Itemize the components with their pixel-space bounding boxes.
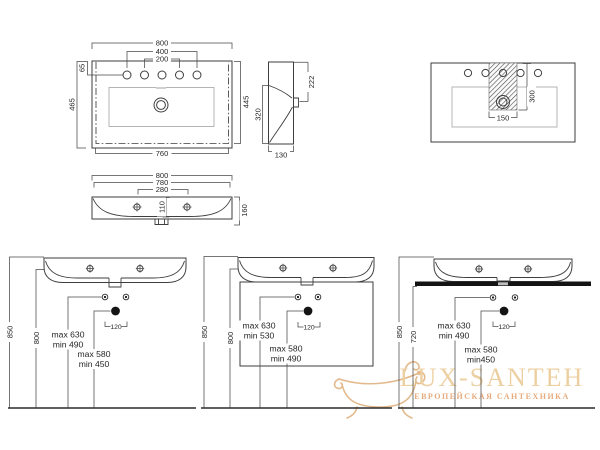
svg-text:445: 445 — [241, 96, 250, 109]
supply-point-icon — [102, 294, 108, 300]
supply-point-icon — [295, 294, 301, 300]
dim-label: 120 — [498, 324, 510, 331]
dim-label: min450 — [463, 355, 500, 365]
sink-outline — [44, 258, 186, 283]
dim-label: 800 — [32, 328, 41, 348]
svg-text:max 580: max 580 — [78, 349, 111, 359]
faucet-hole-icon — [193, 71, 201, 79]
dim-label: 65 — [77, 60, 86, 76]
mount-hole-icon — [133, 203, 142, 212]
dim-label: 280 — [153, 185, 171, 194]
svg-text:min450: min450 — [467, 355, 495, 365]
svg-text:280: 280 — [156, 185, 169, 194]
dim-label: 445 — [241, 92, 250, 113]
bowl-profile — [510, 262, 571, 278]
svg-text:110: 110 — [157, 201, 166, 213]
dim-label: 120 — [110, 324, 122, 331]
drain-ledge — [294, 98, 299, 107]
faucet-hole-icon — [482, 69, 489, 76]
svg-text:max 580: max 580 — [270, 344, 303, 354]
front-view: 800 780 280 110 160 — [92, 171, 249, 225]
svg-text:850: 850 — [5, 326, 14, 339]
svg-text:320: 320 — [253, 108, 262, 121]
svg-text:max 630: max 630 — [438, 321, 471, 331]
svg-text:850: 850 — [200, 326, 209, 339]
dimension-line — [234, 197, 240, 225]
cutout-plan-view: 300 150 — [431, 63, 575, 142]
svg-text:max 580: max 580 — [465, 345, 498, 355]
faucet-hole-icon — [141, 71, 149, 79]
basin-hidden-edge — [96, 62, 229, 144]
svg-text:150: 150 — [497, 113, 510, 122]
faucet-hole-icon — [158, 71, 166, 79]
dim-label: 800 — [226, 328, 235, 348]
svg-text:200: 200 — [156, 55, 169, 64]
dimension-line — [83, 62, 123, 76]
dim-label: 160 — [240, 201, 249, 221]
svg-text:min 490: min 490 — [271, 354, 302, 364]
faucet-hole-icon — [464, 69, 471, 76]
dim-label: 150 — [495, 113, 511, 122]
dim-label: max 630 — [47, 330, 89, 340]
dim-label: max 630 — [433, 321, 475, 331]
dim-label: 222 — [307, 72, 316, 92]
dimension-line — [413, 287, 417, 409]
bowl-outline — [109, 88, 214, 127]
dim-label: 850 — [395, 322, 404, 342]
basin-outline — [92, 61, 232, 148]
mount-hole-icon — [183, 203, 192, 212]
mount-hole-icon — [475, 265, 483, 273]
drain-point-icon — [111, 307, 120, 316]
supply-point-icon — [123, 294, 129, 300]
install-view-cabinet: 850 800 max 630 min 530 max 580 min 490 … — [200, 257, 393, 409]
drain-icon — [157, 101, 166, 110]
supply-point-icon — [315, 294, 321, 300]
svg-text:720: 720 — [409, 331, 418, 344]
bowl-profile — [269, 86, 292, 99]
mount-hole-icon — [86, 264, 94, 272]
svg-text:160: 160 — [240, 204, 249, 217]
dimension-line — [234, 62, 241, 144]
faucet-holes — [123, 71, 201, 79]
dim-label: min 490 — [265, 354, 307, 364]
dim-label: 130 — [272, 150, 290, 159]
dim-label: min 530 — [238, 331, 280, 341]
supply-point-icon — [512, 295, 518, 301]
install-view-counter: 850 720 max 630 min 490 max 580 min450 1… — [395, 257, 596, 408]
drain-point-icon — [500, 307, 509, 316]
svg-text:max 630: max 630 — [52, 330, 85, 340]
dim-label: 200 — [153, 55, 171, 64]
dim-label: max 580 — [460, 345, 502, 355]
faucet-hole-icon — [517, 69, 524, 76]
svg-text:222: 222 — [307, 76, 316, 89]
svg-text:300: 300 — [527, 90, 536, 103]
svg-text:65: 65 — [77, 64, 86, 72]
drain-trap — [155, 219, 168, 225]
mount-hole-icon — [279, 264, 287, 272]
tap-zone-hatch — [489, 63, 517, 110]
supply-point-icon — [490, 295, 496, 301]
dim-label: max 580 — [265, 344, 307, 354]
svg-text:465: 465 — [67, 98, 76, 111]
bowl-profile — [240, 261, 302, 278]
svg-text:max 630: max 630 — [243, 321, 276, 331]
faucet-hole-icon — [534, 69, 541, 76]
svg-text:760: 760 — [156, 149, 169, 158]
drain-through-counter — [498, 282, 508, 285]
svg-text:850: 850 — [395, 326, 404, 339]
dim-label: max 630 — [238, 321, 280, 331]
dim-label: 120 — [303, 325, 315, 332]
svg-text:min 490: min 490 — [53, 340, 84, 350]
drawing-layer: 800 400 200 760 65 465 445 222 320 130 — [0, 0, 600, 450]
sink-outline — [434, 259, 572, 282]
drain-trap — [497, 278, 510, 282]
dim-label: 110 — [157, 198, 166, 217]
dim-label: min 490 — [433, 331, 475, 341]
dimension-line — [263, 86, 269, 144]
dim-label: 465 — [67, 94, 76, 115]
mount-hole-icon — [136, 264, 144, 272]
svg-text:min 490: min 490 — [439, 331, 470, 341]
bowl-profile — [313, 261, 373, 278]
dim-label: 850 — [200, 322, 209, 342]
dim-label: max 580 — [73, 349, 115, 359]
faucet-hole-icon — [123, 71, 131, 79]
bowl-profile — [46, 261, 110, 278]
technical-drawing-sheet: LUX-SANTEH ЕВРОПЕЙСКАЯ САНТЕХНИКА — [0, 0, 600, 450]
dim-label: min 490 — [47, 340, 89, 350]
side-view: 222 320 130 — [253, 62, 316, 159]
install-view-wall: 850 800 max 630 min 490 max 580 min 450 … — [5, 257, 196, 408]
mount-hole-icon — [524, 265, 532, 273]
side-outline — [269, 62, 294, 144]
drain-trap — [301, 278, 313, 286]
svg-text:min 450: min 450 — [79, 359, 110, 369]
faucet-hole-icon — [176, 71, 184, 79]
svg-text:min 530: min 530 — [244, 331, 275, 341]
svg-text:800: 800 — [32, 332, 41, 345]
dim-label: min 450 — [73, 359, 115, 369]
mount-hole-icon — [329, 264, 337, 272]
bowl-profile — [270, 107, 293, 143]
dim-label: 320 — [253, 105, 262, 126]
plan-view: 800 400 200 760 65 465 445 — [67, 39, 250, 159]
bowl-profile — [121, 261, 185, 278]
sink-outline — [238, 258, 374, 283]
drain-point-icon — [304, 307, 313, 316]
bowl-profile — [436, 262, 498, 278]
svg-text:800: 800 — [226, 332, 235, 345]
dim-label: 720 — [409, 327, 418, 347]
dim-label: 300 — [527, 87, 536, 107]
dim-label: 850 — [5, 322, 14, 342]
svg-text:130: 130 — [275, 150, 288, 159]
dim-label: 760 — [153, 149, 172, 158]
